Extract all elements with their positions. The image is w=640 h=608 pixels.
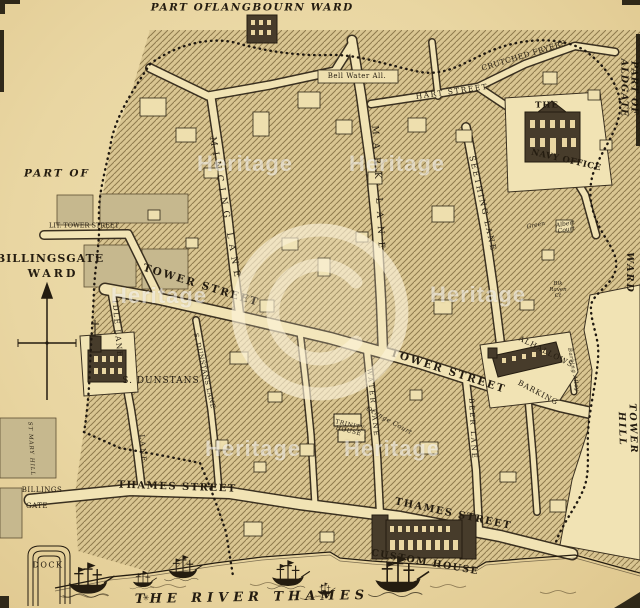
- engraved-ward-map: PART OFLANGBOURN WARDPART OF ALDGATEWARD…: [0, 0, 640, 608]
- photo-edge-artifacts: [0, 0, 640, 608]
